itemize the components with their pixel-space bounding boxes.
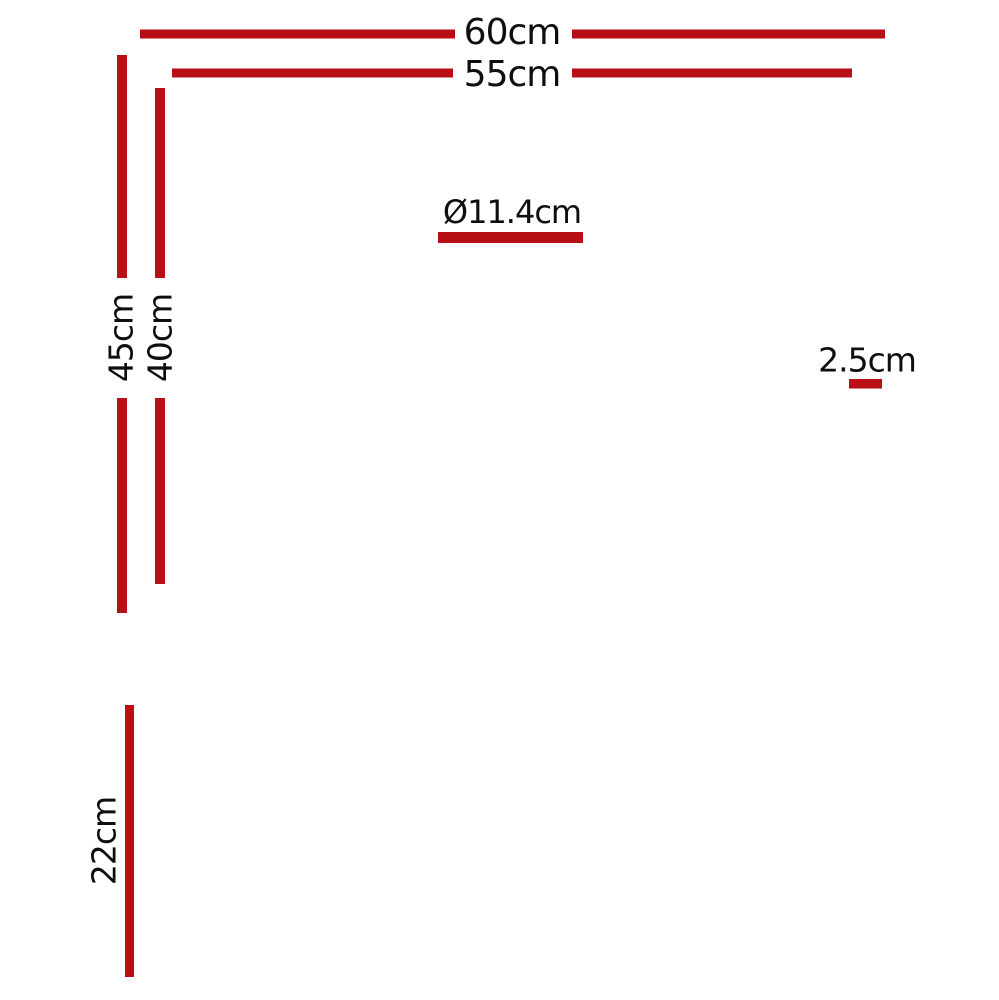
- dim-45cm-bar-top: [117, 55, 127, 278]
- side-view-right-wall: [832, 708, 849, 964]
- dim-40cm-bar-top: [155, 88, 165, 278]
- diagonal-bottom-right: [558, 286, 840, 575]
- dim-60cm-bar-left: [140, 30, 455, 39]
- diagonal-bottom-left: [180, 286, 460, 575]
- dim-edge-depth-bar: [849, 379, 882, 389]
- dim-55cm-label: 55cm: [464, 57, 561, 93]
- dim-40cm-bar-bottom: [155, 398, 165, 584]
- dim-depth-22cm-bar: [125, 705, 134, 977]
- dim-45cm-label: 45cm: [105, 294, 138, 382]
- diagram-linework: [0, 0, 999, 1000]
- dimension-bars-group: [117, 30, 885, 978]
- sink-dimensions-diagram: 60cm 55cm 45cm 40cm Ø11.4cm 2.5cm 22cm: [0, 0, 999, 1000]
- dim-45cm-bar-bottom: [117, 398, 127, 613]
- top-view-inner-rect: [172, 88, 848, 582]
- dim-60cm-bar-right: [572, 30, 885, 39]
- diagonal-top-left: [180, 95, 445, 208]
- dim-40cm-label: 40cm: [144, 294, 177, 382]
- top-view-outer-rect: [142, 57, 882, 611]
- dim-drain-diameter-label: Ø11.4cm: [443, 196, 581, 228]
- diagonal-top-right: [573, 95, 840, 208]
- side-view-drain-boss-inner: [444, 964, 578, 975]
- dim-55cm-bar-right: [572, 69, 852, 78]
- dim-depth-22cm-label: 22cm: [88, 797, 121, 885]
- dim-edge-depth-label: 2.5cm: [818, 344, 916, 377]
- side-view-drain-boss-outer: [432, 964, 590, 978]
- dim-drain-diameter-bar: [438, 232, 583, 243]
- dim-55cm-bar-left: [172, 69, 453, 78]
- side-view-left-wall: [172, 708, 189, 964]
- dim-60cm-label: 60cm: [464, 15, 561, 51]
